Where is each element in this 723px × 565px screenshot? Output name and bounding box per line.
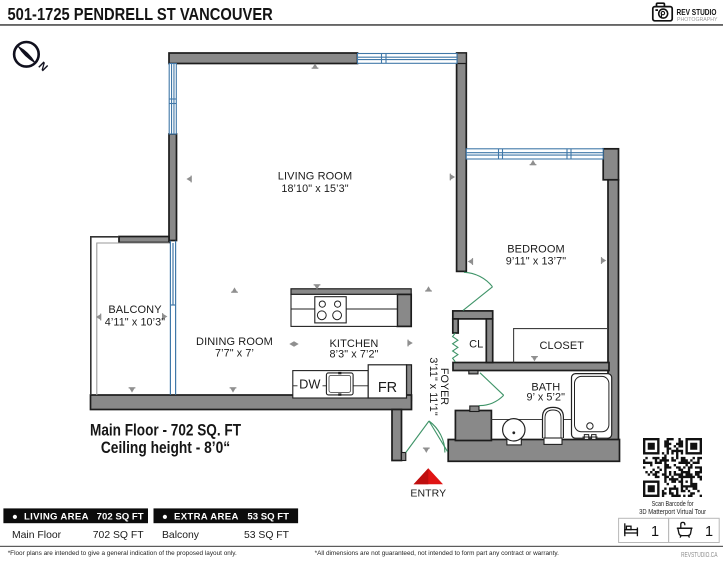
svg-text:BEDROOM: BEDROOM bbox=[507, 244, 565, 256]
svg-text:53 SQ FT: 53 SQ FT bbox=[244, 530, 290, 541]
svg-text:1: 1 bbox=[705, 524, 713, 540]
svg-text:8’3" x 7’2": 8’3" x 7’2" bbox=[330, 349, 379, 361]
svg-text:Scan Barcode for: Scan Barcode for bbox=[652, 500, 694, 508]
svg-text:Main Floor: Main Floor bbox=[12, 530, 62, 541]
svg-text:BALCONY: BALCONY bbox=[108, 304, 162, 316]
svg-text:FR: FR bbox=[378, 380, 397, 396]
svg-text:DINING ROOM: DINING ROOM bbox=[196, 336, 273, 348]
svg-text:REV STUDIO: REV STUDIO bbox=[677, 8, 717, 17]
svg-text:PHOTOGRAPHY: PHOTOGRAPHY bbox=[677, 17, 718, 23]
svg-text:3’11" x 11’1": 3’11" x 11’1" bbox=[427, 357, 439, 415]
svg-text:3D Matterport Virtual Tour: 3D Matterport Virtual Tour bbox=[639, 508, 707, 516]
svg-text:DW: DW bbox=[299, 377, 321, 392]
svg-text:501-1725 PENDRELL ST VANCOUVER: 501-1725 PENDRELL ST VANCOUVER bbox=[8, 5, 273, 25]
svg-text:1: 1 bbox=[651, 524, 659, 540]
svg-text:702 SQ FT: 702 SQ FT bbox=[97, 511, 144, 522]
svg-text:Balcony: Balcony bbox=[162, 530, 200, 541]
svg-text:9’ x 5’2": 9’ x 5’2" bbox=[527, 392, 566, 404]
svg-text:LIVING ROOM: LIVING ROOM bbox=[278, 171, 352, 183]
svg-text:702 SQ FT: 702 SQ FT bbox=[93, 530, 144, 541]
svg-text:Ceiling height - 8’0“: Ceiling height - 8’0“ bbox=[101, 439, 230, 458]
svg-text:18’10" x 15’3": 18’10" x 15’3" bbox=[281, 183, 348, 195]
svg-text:9’11" x 13’7": 9’11" x 13’7" bbox=[506, 256, 566, 268]
svg-text:REVSTUDIO.CA: REVSTUDIO.CA bbox=[681, 550, 718, 559]
svg-text:ENTRY: ENTRY bbox=[410, 488, 446, 500]
svg-text:● LIVING AREA: ● LIVING AREA bbox=[12, 511, 89, 522]
svg-text:Main Floor - 702 SQ. FT: Main Floor - 702 SQ. FT bbox=[90, 421, 242, 440]
svg-text:CLOSET: CLOSET bbox=[539, 340, 584, 352]
svg-text:53 SQ FT: 53 SQ FT bbox=[247, 511, 289, 522]
svg-text:● EXTRA AREA: ● EXTRA AREA bbox=[162, 511, 239, 522]
svg-text:4’11" x 10’3": 4’11" x 10’3" bbox=[105, 317, 165, 329]
svg-text:7’7" x 7’: 7’7" x 7’ bbox=[215, 348, 254, 360]
svg-text:*All dimensions are not guaran: *All dimensions are not guaranteed, not … bbox=[315, 550, 560, 557]
svg-text:*Floor plans are intended to g: *Floor plans are intended to give a gene… bbox=[8, 550, 237, 557]
svg-text:CL: CL bbox=[469, 339, 483, 351]
